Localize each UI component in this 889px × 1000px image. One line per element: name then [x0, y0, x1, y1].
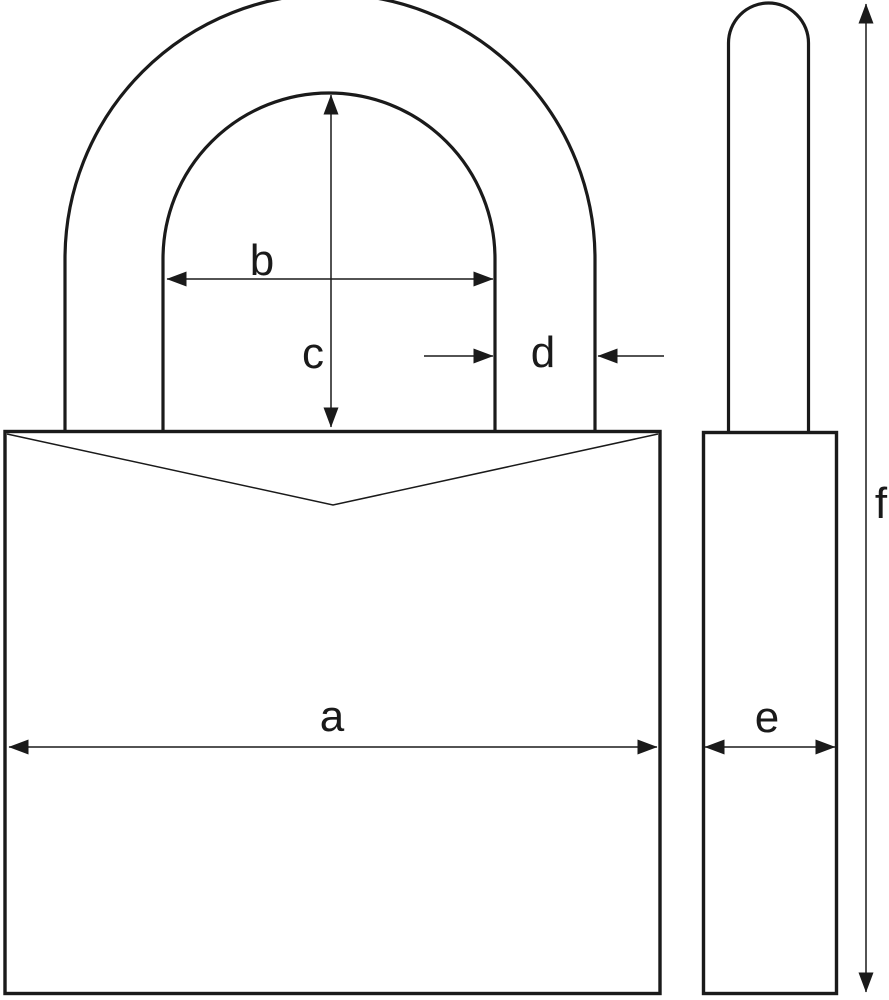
front-shackle-inner-contour [163, 93, 495, 432]
front-shackle-outer-contour [65, 0, 595, 432]
dimension-label-e: e [755, 693, 779, 742]
side-view [704, 3, 837, 994]
dimension-label-a: a [320, 692, 345, 741]
front-view [5, 0, 660, 994]
dimension-label-c: c [302, 329, 324, 378]
diagram-canvas: b c d a e f [0, 0, 889, 1000]
side-shackle-contour [729, 3, 809, 433]
dimension-label-b: b [250, 236, 274, 285]
dimension-label-d: d [531, 328, 555, 377]
dimension-label-f: f [875, 479, 888, 528]
padlock-dimension-diagram: b c d a e f [0, 0, 889, 1000]
